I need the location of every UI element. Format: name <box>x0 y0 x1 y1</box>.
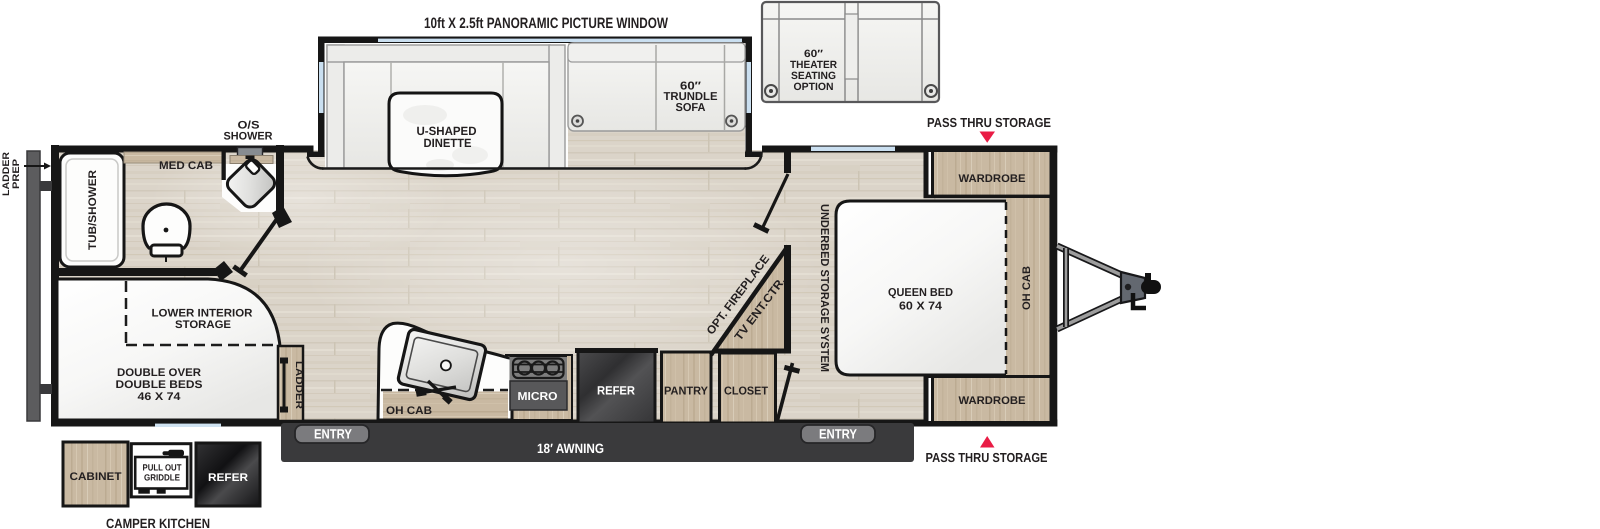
svg-text:WARDROBE: WARDROBE <box>959 395 1026 407</box>
svg-text:PASS THRU STORAGE: PASS THRU STORAGE <box>926 450 1048 465</box>
svg-text:DOUBLE BEDS: DOUBLE BEDS <box>116 379 203 391</box>
svg-text:WARDROBE: WARDROBE <box>959 173 1026 185</box>
svg-text:SHOWER: SHOWER <box>224 131 273 143</box>
svg-text:PREP: PREP <box>11 158 22 189</box>
svg-text:MED CAB: MED CAB <box>159 160 213 172</box>
svg-text:GRIDDLE: GRIDDLE <box>144 472 180 482</box>
svg-text:LOWER INTERIOR: LOWER INTERIOR <box>152 308 253 320</box>
svg-text:MICRO: MICRO <box>518 391 558 403</box>
svg-text:CLOSET: CLOSET <box>724 386 768 398</box>
svg-text:CAMPER KITCHEN: CAMPER KITCHEN <box>106 516 210 529</box>
svg-text:TUB/SHOWER: TUB/SHOWER <box>87 170 99 250</box>
svg-text:PANTRY: PANTRY <box>664 386 708 398</box>
svg-text:18′ AWNING: 18′ AWNING <box>537 441 604 456</box>
svg-text:PULL OUT: PULL OUT <box>143 463 182 473</box>
svg-text:REFER: REFER <box>597 384 635 398</box>
svg-text:CABINET: CABINET <box>70 471 122 483</box>
svg-text:DOUBLE OVER: DOUBLE OVER <box>117 367 201 379</box>
svg-text:PASS THRU STORAGE: PASS THRU STORAGE <box>927 115 1051 130</box>
svg-text:OH CAB: OH CAB <box>1021 266 1033 310</box>
svg-text:10ft X 2.5ft PANORAMIC PICTURE: 10ft X 2.5ft PANORAMIC PICTURE WINDOW <box>424 15 669 32</box>
svg-text:OPTION: OPTION <box>794 81 834 93</box>
svg-text:60 X 74: 60 X 74 <box>899 301 943 313</box>
svg-text:46 X 74: 46 X 74 <box>138 391 182 403</box>
svg-text:DINETTE: DINETTE <box>424 136 472 150</box>
svg-text:OH CAB: OH CAB <box>386 405 432 417</box>
svg-text:ENTRY: ENTRY <box>314 427 352 442</box>
svg-text:QUEEN BED: QUEEN BED <box>888 287 953 299</box>
svg-text:REFER: REFER <box>208 472 248 484</box>
svg-text:UNDERBED STORAGE SYSTEM: UNDERBED STORAGE SYSTEM <box>818 204 830 372</box>
svg-text:SOFA: SOFA <box>676 102 706 114</box>
svg-text:LADDER: LADDER <box>293 361 304 409</box>
svg-text:ENTRY: ENTRY <box>819 427 857 442</box>
svg-text:STORAGE: STORAGE <box>175 319 231 331</box>
